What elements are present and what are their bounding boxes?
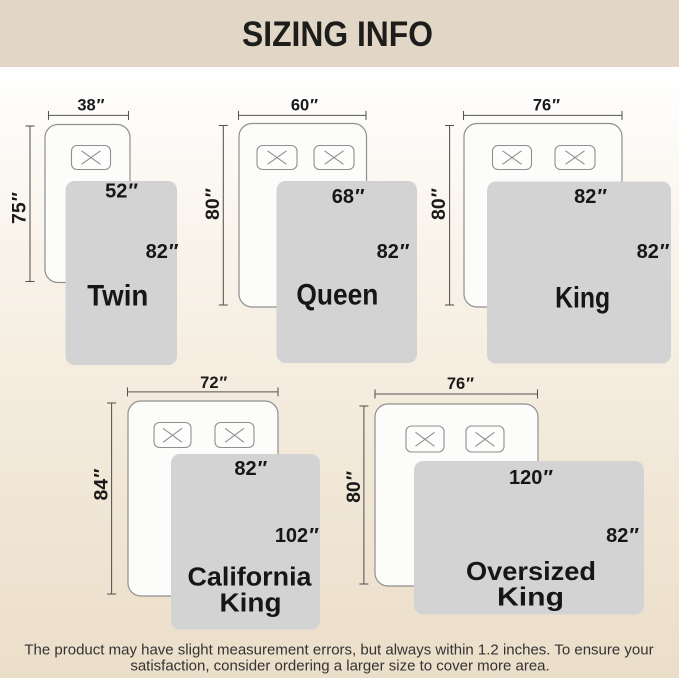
svg-text:72″: 72″ (200, 374, 227, 392)
svg-text:82″: 82″ (637, 241, 670, 263)
svg-text:76″: 76″ (533, 97, 560, 115)
svg-text:80″: 80″ (428, 187, 450, 220)
svg-text:The product may have slight me: The product may have slight measurement … (24, 642, 653, 659)
svg-text:Twin: Twin (87, 280, 148, 313)
svg-text:75″: 75″ (9, 191, 31, 224)
svg-text:84″: 84″ (91, 468, 113, 501)
svg-text:80″: 80″ (202, 187, 224, 220)
svg-text:California: California (188, 564, 313, 592)
svg-text:76″: 76″ (447, 375, 474, 393)
svg-text:120″: 120″ (509, 467, 553, 489)
svg-text:52″: 52″ (105, 181, 138, 203)
svg-text:82″: 82″ (574, 186, 607, 208)
svg-text:satisfaction, consider orderin: satisfaction, consider ordering a larger… (130, 658, 549, 675)
svg-text:82″: 82″ (234, 458, 267, 480)
svg-text:80″: 80″ (343, 470, 365, 503)
svg-text:60″: 60″ (291, 97, 318, 115)
svg-text:102″: 102″ (275, 525, 319, 547)
svg-text:King: King (497, 581, 564, 611)
svg-text:King: King (555, 282, 610, 315)
svg-text:82″: 82″ (606, 525, 639, 547)
svg-text:82″: 82″ (377, 241, 410, 263)
svg-text:82″: 82″ (146, 241, 179, 263)
svg-text:Queen: Queen (296, 279, 378, 312)
svg-text:King: King (220, 590, 282, 618)
svg-text:SIZING INFO: SIZING INFO (242, 15, 433, 54)
svg-text:38″: 38″ (77, 97, 104, 115)
svg-text:68″: 68″ (332, 186, 365, 208)
